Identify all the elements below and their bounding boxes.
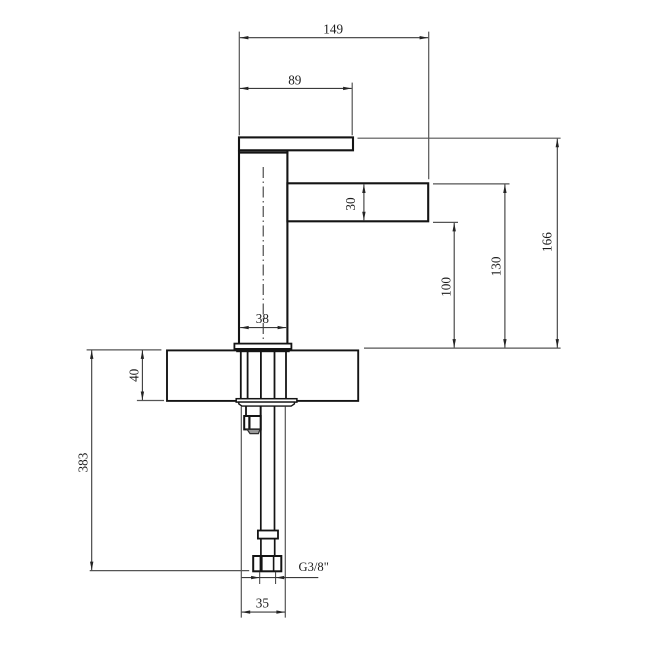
svg-text:100: 100 [438, 277, 453, 297]
svg-text:35: 35 [256, 596, 270, 611]
svg-text:130: 130 [489, 256, 504, 276]
svg-text:G3/8": G3/8" [299, 560, 329, 574]
svg-text:383: 383 [75, 452, 90, 472]
svg-text:89: 89 [288, 72, 302, 87]
svg-text:30: 30 [343, 197, 358, 211]
svg-text:38: 38 [256, 311, 270, 326]
svg-text:40: 40 [127, 368, 142, 382]
svg-text:166: 166 [540, 232, 555, 252]
svg-text:149: 149 [323, 22, 343, 37]
